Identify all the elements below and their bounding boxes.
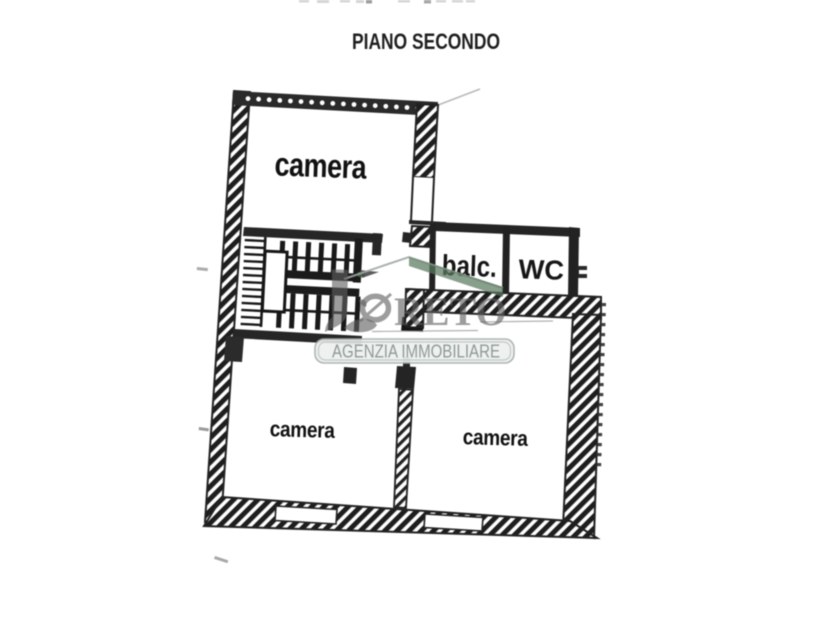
svg-text:WC: WC <box>518 253 565 286</box>
svg-text:RETO: RETO <box>394 289 507 334</box>
svg-text:camera: camera <box>463 425 529 451</box>
svg-text:camera: camera <box>274 147 367 186</box>
svg-text:PIANO SECONDO: PIANO SECONDO <box>352 29 500 54</box>
svg-text:camera: camera <box>270 417 336 443</box>
svg-text:AGENZIA IMMOBILIARE: AGENZIA IMMOBILIARE <box>332 341 500 362</box>
